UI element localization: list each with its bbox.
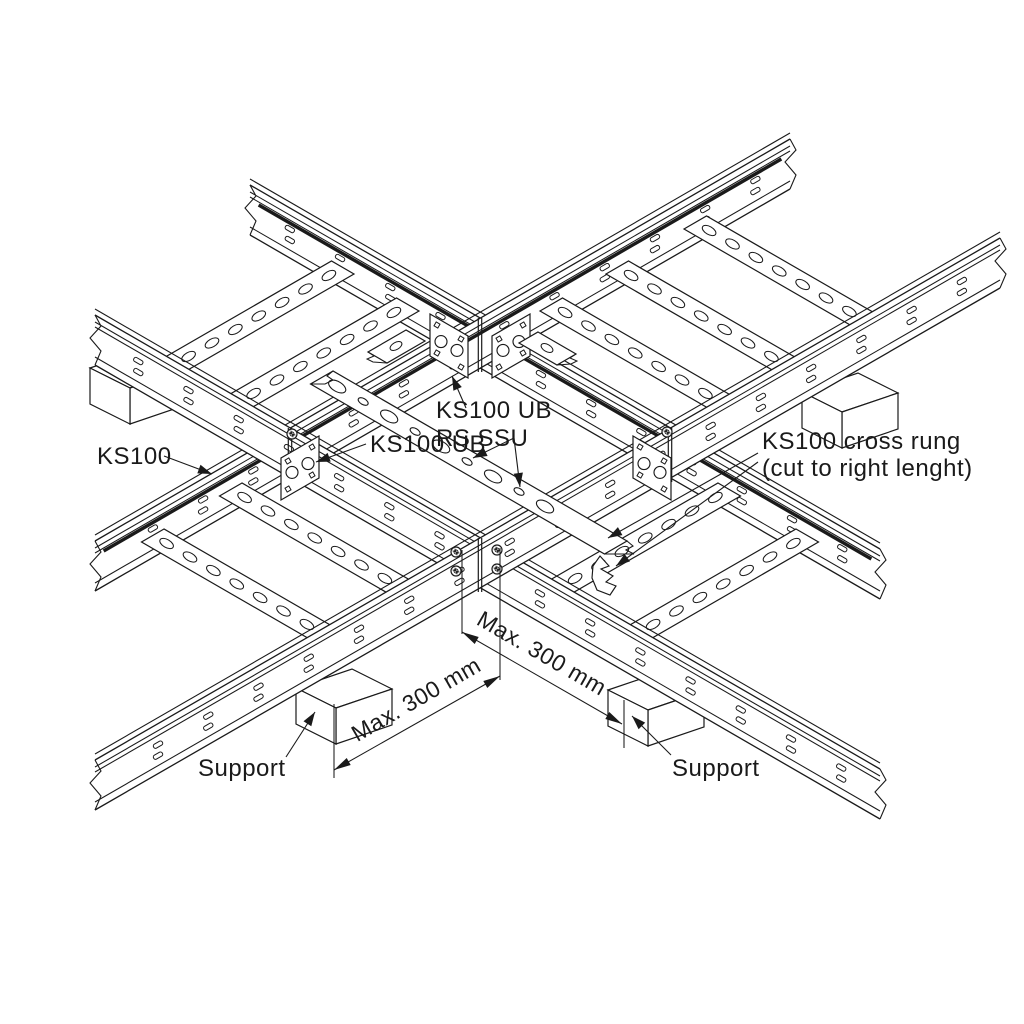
label-cross-rung-line2: (cut to right lenght) (762, 455, 973, 482)
ladder-crossing-diagram: KS100 UB RS SSU KS100 cross rung (cut to… (0, 0, 1024, 1024)
label-ks100: KS100 (97, 443, 172, 470)
label-cross-rung-line1: KS100 cross rung (762, 428, 961, 455)
label-ks100-ub-left: KS100 UB (370, 431, 486, 458)
label-support-right: Support (672, 755, 760, 782)
isometric-drawing: KS100 UB RS SSU KS100 cross rung (cut to… (0, 0, 1024, 1024)
label-ks100-ub-top: KS100 UB (436, 397, 552, 424)
label-support-left: Support (198, 755, 286, 782)
